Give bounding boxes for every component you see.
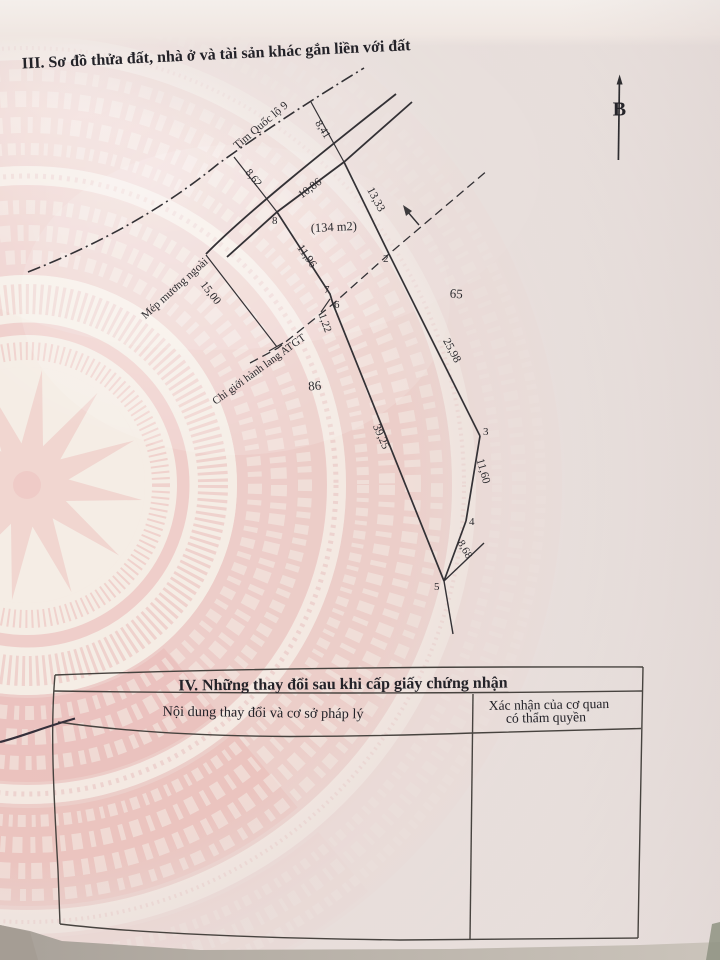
svg-text:65: 65 xyxy=(449,286,463,302)
svg-text:7: 7 xyxy=(324,284,330,296)
svg-text:5: 5 xyxy=(434,581,440,593)
svg-text:3: 3 xyxy=(483,426,489,438)
svg-text:Nội dung thay đổi và cơ sở phá: Nội dung thay đổi và cơ sở pháp lý xyxy=(162,704,364,723)
svg-text:4: 4 xyxy=(469,516,475,528)
svg-text:B: B xyxy=(613,99,626,121)
svg-text:IV. Những thay đổi sau khi cấp: IV. Những thay đổi sau khi cấp giấy chứn… xyxy=(178,675,507,695)
svg-text:6: 6 xyxy=(334,299,340,311)
svg-text:(134 m2): (134 m2) xyxy=(310,219,357,235)
svg-text:86: 86 xyxy=(308,378,323,394)
svg-text:8: 8 xyxy=(272,215,278,227)
svg-text:2: 2 xyxy=(383,253,389,265)
svg-text:có thẩm quyền: có thẩm quyền xyxy=(506,709,586,725)
